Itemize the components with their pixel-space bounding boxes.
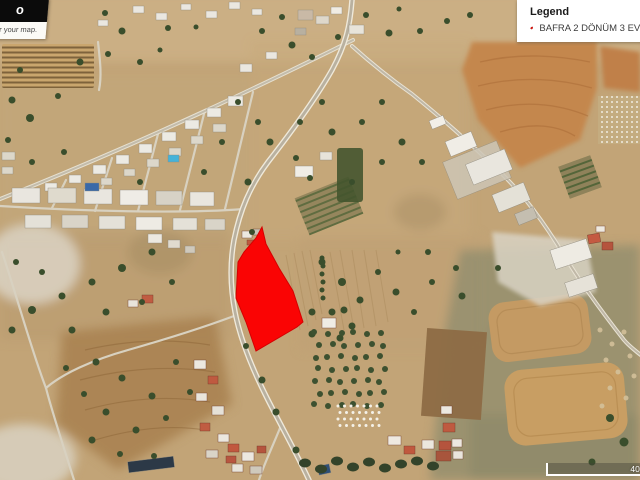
legend-title: Legend	[530, 6, 640, 18]
legend-item-label: BAFRA 2 DÖNÜM 3 EVLEK Y	[539, 23, 640, 34]
scale-bar-label: 400 m	[630, 464, 640, 474]
watermark-caption: r your map.	[0, 22, 47, 39]
polygon-marker-icon	[530, 22, 533, 34]
scale-bar: 400 m	[546, 463, 640, 476]
map-viewport[interactable]: o r your map. Legend BAFRA 2 DÖNÜM 3 EVL…	[0, 0, 640, 480]
parcel-polygon[interactable]	[236, 227, 303, 351]
legend-panel: Legend BAFRA 2 DÖNÜM 3 EVLEK Y	[517, 0, 640, 42]
watermark-logo-text: o	[0, 0, 49, 22]
legend-item[interactable]: BAFRA 2 DÖNÜM 3 EVLEK Y	[530, 22, 640, 34]
watermark-card: o r your map.	[0, 0, 49, 39]
satellite-map[interactable]	[0, 0, 640, 480]
